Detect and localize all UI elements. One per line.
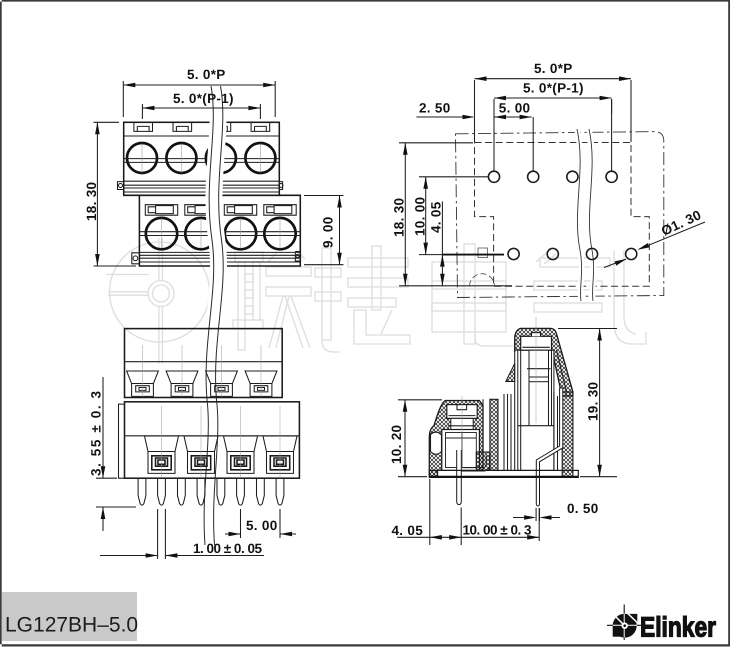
svg-text:10. 20: 10. 20 (389, 425, 404, 464)
svg-text:0. 50: 0. 50 (567, 501, 599, 516)
svg-text:5. 0*(P-1): 5. 0*(P-1) (523, 81, 584, 96)
svg-text:9. 00: 9. 00 (321, 216, 336, 248)
svg-text:1. 00 ± 0. 05: 1. 00 ± 0. 05 (193, 541, 262, 556)
svg-text:4. 05: 4. 05 (392, 523, 424, 538)
svg-text:5. 0*P: 5. 0*P (534, 61, 573, 76)
svg-text:3. 55 ± 0. 3: 3. 55 ± 0. 3 (89, 389, 104, 476)
svg-text:5. 0*P: 5. 0*P (187, 67, 226, 82)
svg-text:18. 30: 18. 30 (392, 198, 407, 237)
svg-text:2. 50: 2. 50 (419, 101, 451, 116)
svg-text:LG127BH–5.0: LG127BH–5.0 (5, 614, 138, 637)
svg-text:19. 30: 19. 30 (586, 382, 601, 421)
svg-text:5. 00: 5. 00 (246, 518, 278, 533)
svg-text:5. 00: 5. 00 (499, 101, 531, 116)
svg-text:18. 30: 18. 30 (84, 182, 99, 221)
svg-text:Elinker: Elinker (640, 612, 716, 643)
svg-text:10. 00: 10. 00 (413, 197, 428, 236)
svg-text:4. 05: 4. 05 (429, 201, 444, 233)
svg-text:10. 00 ± 0. 3: 10. 00 ± 0. 3 (463, 523, 532, 538)
svg-text:5. 0*(P-1): 5. 0*(P-1) (173, 91, 234, 106)
